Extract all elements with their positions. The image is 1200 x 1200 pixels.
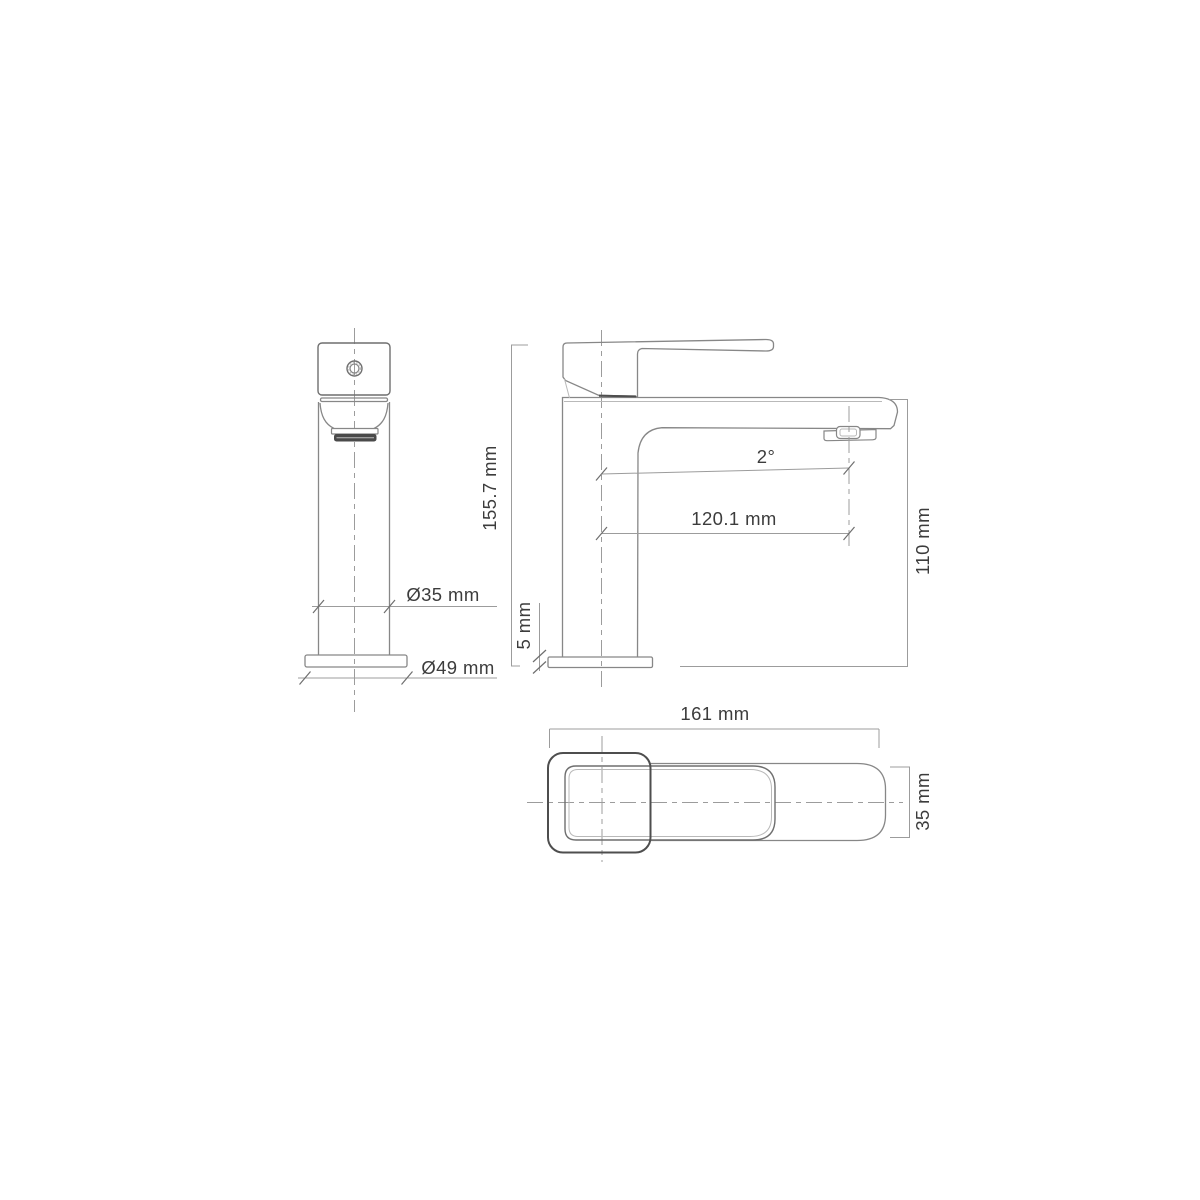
dim-label-front-base-diameter: Ø49 mm bbox=[421, 657, 494, 678]
drawing-canvas: Ø35 mm Ø49 mm 155.7 mm 5 mm bbox=[0, 0, 1200, 1200]
dim-label-side-spout-angle: 2° bbox=[757, 446, 776, 467]
side-view: 155.7 mm 5 mm 2° 120.1 mm 110 mm bbox=[479, 330, 933, 688]
front-base-plate bbox=[305, 655, 407, 667]
front-spout-right-curve bbox=[374, 403, 388, 429]
dim-label-side-base-height: 5 mm bbox=[513, 602, 534, 650]
side-base-plate bbox=[548, 657, 653, 668]
side-dim-line-spout-angle bbox=[602, 468, 850, 474]
dim-label-front-body-diameter: Ø35 mm bbox=[406, 584, 479, 605]
dim-label-side-total-height: 155.7 mm bbox=[479, 445, 500, 530]
front-spout-left-curve bbox=[320, 403, 334, 429]
side-handle-contact-line bbox=[599, 396, 636, 397]
top-view: 161 mm 35 mm bbox=[527, 703, 933, 862]
side-handle-outline bbox=[563, 340, 774, 397]
dim-label-side-spout-height: 110 mm bbox=[912, 507, 933, 575]
front-view: Ø35 mm Ø49 mm bbox=[298, 328, 497, 712]
dim-label-top-handle-width: 35 mm bbox=[912, 772, 933, 831]
front-spout-lip bbox=[332, 429, 379, 435]
dim-label-side-spout-reach: 120.1 mm bbox=[691, 508, 776, 529]
faucet-technical-drawing: Ø35 mm Ø49 mm 155.7 mm 5 mm bbox=[0, 0, 1200, 1200]
dim-label-top-total-length: 161 mm bbox=[680, 703, 749, 724]
